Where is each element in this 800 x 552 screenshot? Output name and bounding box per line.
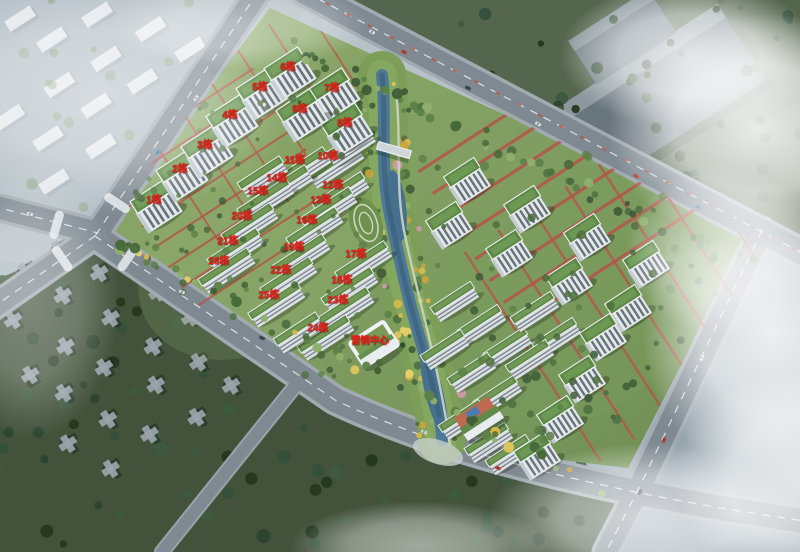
tree: [584, 178, 593, 187]
tree: [340, 344, 345, 349]
tree: [369, 103, 375, 109]
tree: [278, 450, 291, 463]
tree: [539, 436, 547, 444]
tree: [454, 409, 461, 416]
tree: [365, 454, 377, 466]
tree: [499, 397, 506, 404]
tree: [374, 340, 378, 344]
tree: [332, 374, 337, 379]
tree: [222, 247, 230, 255]
tree: [179, 248, 184, 253]
tree: [192, 279, 197, 284]
tree: [363, 108, 367, 112]
tree: [40, 525, 53, 538]
tree: [506, 152, 515, 161]
tree: [554, 333, 561, 340]
tree: [192, 446, 201, 455]
tree: [187, 224, 195, 232]
tree: [584, 395, 592, 403]
tree: [246, 208, 251, 213]
tree: [592, 376, 600, 384]
tree: [543, 169, 552, 178]
tree: [354, 231, 360, 237]
tree: [426, 114, 435, 123]
tree: [525, 303, 531, 309]
tree: [280, 246, 288, 254]
tree: [542, 274, 549, 281]
tree: [154, 235, 160, 241]
tree: [317, 229, 322, 234]
tree: [426, 298, 431, 303]
tree: [400, 451, 410, 461]
tree: [310, 484, 322, 496]
tree: [426, 208, 432, 214]
tree: [240, 236, 246, 242]
tree: [418, 256, 424, 262]
tree: [408, 346, 415, 353]
tree: [489, 266, 494, 271]
tree: [509, 306, 516, 313]
tree: [365, 169, 374, 178]
tree: [222, 487, 234, 499]
tree: [576, 304, 582, 310]
tree: [282, 320, 291, 329]
tree: [336, 353, 344, 361]
tree: [508, 400, 517, 409]
tree: [326, 366, 333, 373]
tree: [409, 101, 418, 110]
tree: [219, 197, 226, 204]
tree: [569, 291, 578, 300]
tree: [294, 209, 299, 214]
tree: [412, 379, 418, 385]
tree: [312, 343, 322, 353]
tree: [301, 371, 309, 379]
tree: [570, 270, 576, 276]
tree: [416, 432, 422, 438]
tree: [407, 334, 411, 338]
aerial-masterplan-rendering: 1栋2栋3栋4栋5栋6栋7栋8栋9栋10栋11栋12栋13栋14栋15栋16栋1…: [0, 0, 800, 552]
tree: [199, 371, 207, 379]
tree: [405, 370, 413, 378]
tree: [578, 345, 586, 353]
tree: [475, 273, 483, 281]
tree: [132, 306, 142, 316]
tree: [177, 272, 183, 278]
tree: [569, 377, 577, 385]
tree: [406, 184, 415, 193]
tree: [417, 108, 425, 116]
tree: [538, 40, 544, 46]
tree: [300, 425, 307, 432]
tree: [522, 374, 531, 383]
tree: [152, 244, 159, 251]
tree: [261, 315, 268, 322]
tree: [419, 155, 427, 163]
tree: [376, 359, 383, 366]
tree: [291, 281, 298, 288]
tree: [629, 379, 637, 387]
tree: [441, 224, 446, 229]
tree: [485, 357, 494, 366]
tree: [269, 329, 275, 335]
tree: [531, 371, 541, 381]
tree: [110, 432, 119, 441]
tree: [534, 426, 543, 435]
tree: [392, 88, 403, 99]
tree: [613, 207, 622, 216]
tree: [482, 430, 492, 440]
tree: [493, 221, 500, 228]
tree: [318, 371, 324, 377]
tree: [351, 286, 356, 291]
tree: [227, 276, 233, 282]
tree: [400, 327, 407, 334]
tree: [419, 421, 426, 428]
tree: [250, 201, 255, 206]
tree: [492, 438, 497, 443]
tree: [60, 540, 67, 547]
tree: [401, 88, 408, 95]
tree: [397, 384, 404, 391]
tree: [536, 333, 544, 341]
tree: [421, 276, 429, 284]
tree: [585, 153, 593, 161]
tree: [210, 288, 217, 295]
tree: [172, 265, 179, 272]
tree: [612, 415, 621, 424]
tree: [537, 450, 547, 460]
tree: [298, 246, 305, 253]
tree: [479, 8, 491, 20]
tree: [321, 193, 328, 200]
tree: [406, 108, 411, 113]
tree: [458, 20, 465, 27]
tree: [492, 431, 498, 437]
tree: [603, 390, 608, 395]
tree: [483, 127, 489, 133]
tree: [435, 263, 441, 269]
tree: [392, 82, 396, 86]
tree: [401, 108, 406, 113]
tree: [362, 362, 370, 370]
tree: [350, 365, 359, 374]
tree: [144, 254, 150, 260]
tree: [224, 404, 235, 415]
tree: [478, 356, 486, 364]
aerial-scene: [0, 0, 800, 552]
tree: [625, 201, 630, 206]
tree: [354, 312, 361, 319]
tree: [143, 259, 150, 266]
tree: [191, 231, 198, 238]
tree: [458, 367, 468, 377]
tree: [334, 108, 339, 113]
tree: [527, 158, 535, 166]
tree: [570, 392, 577, 399]
tree: [362, 85, 372, 95]
tree: [336, 176, 341, 181]
tree: [259, 277, 264, 282]
tree: [583, 405, 592, 414]
tree: [326, 289, 330, 293]
tree: [179, 279, 186, 286]
tree: [245, 472, 257, 484]
tree: [338, 152, 345, 159]
tree: [374, 367, 381, 374]
tree: [244, 287, 249, 292]
tree: [321, 64, 329, 72]
tree: [121, 246, 127, 252]
tree: [375, 86, 381, 92]
tree: [592, 191, 599, 198]
tree: [145, 241, 149, 245]
tree: [494, 150, 503, 159]
tree: [482, 140, 489, 147]
tree: [359, 241, 367, 249]
tree: [261, 242, 266, 247]
tree: [557, 404, 563, 410]
tree: [489, 334, 496, 341]
tree: [230, 313, 237, 320]
tree: [466, 416, 474, 424]
tree: [351, 78, 360, 87]
tree: [347, 358, 352, 363]
tree: [450, 121, 461, 132]
tree: [415, 422, 419, 426]
tree: [421, 263, 425, 267]
tree: [398, 313, 403, 318]
tree: [393, 300, 402, 309]
tree: [503, 442, 514, 453]
tree: [302, 333, 309, 340]
tree: [312, 464, 324, 476]
tree: [470, 306, 478, 314]
tree: [448, 489, 460, 501]
tree: [416, 226, 421, 231]
tree: [204, 226, 210, 232]
tree: [183, 490, 192, 499]
tree: [535, 159, 543, 167]
tree: [571, 105, 579, 113]
tree: [352, 66, 359, 73]
tree: [564, 160, 573, 169]
tree: [257, 529, 271, 543]
tree: [573, 184, 580, 191]
tree: [590, 351, 598, 359]
tree: [129, 387, 138, 396]
tree: [329, 466, 343, 480]
tree: [577, 230, 586, 239]
tree: [381, 86, 390, 95]
tree: [587, 196, 594, 203]
tree: [385, 311, 393, 319]
tree: [435, 165, 441, 171]
tree: [520, 159, 527, 166]
tree: [339, 194, 343, 198]
tree: [527, 410, 534, 417]
tree: [331, 214, 336, 219]
tree: [116, 509, 124, 517]
tree: [393, 160, 402, 169]
tree: [424, 390, 434, 400]
tree: [231, 296, 242, 307]
tree: [321, 477, 332, 488]
tree: [184, 250, 188, 254]
tree: [217, 213, 223, 219]
tree: [361, 76, 366, 81]
tree: [607, 302, 615, 310]
tree: [382, 284, 387, 289]
tree: [332, 133, 340, 141]
tree: [567, 178, 574, 185]
tree: [151, 261, 158, 268]
tree: [418, 267, 425, 274]
tree: [317, 351, 325, 359]
tree: [480, 161, 489, 170]
tree: [527, 214, 535, 222]
tree: [94, 501, 102, 509]
tree: [550, 359, 557, 366]
tree: [344, 334, 349, 339]
tree: [466, 476, 477, 487]
tree: [40, 455, 48, 463]
tree: [292, 330, 297, 335]
